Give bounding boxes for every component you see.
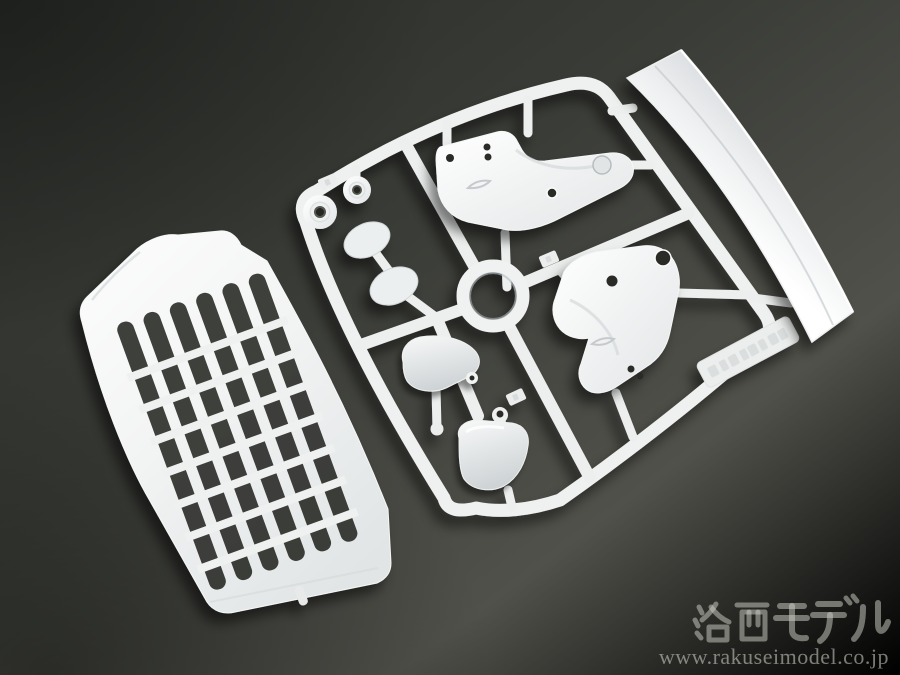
grommet-a: Small round grommet part	[303, 195, 337, 229]
sprue-photo: Sprue runner frame Round ring part	[0, 0, 900, 675]
housing-lug-hole	[497, 411, 504, 418]
bracket-hole	[485, 154, 492, 161]
bracket-hole	[484, 144, 491, 151]
gate	[612, 108, 633, 111]
bracket-hole	[637, 373, 644, 380]
bracket-hole	[628, 366, 635, 373]
gate	[436, 388, 437, 428]
housing-eyelet-hole	[470, 376, 475, 381]
gate	[505, 233, 507, 287]
gate	[508, 490, 512, 507]
watermark-url-text: www.rakuseimodel.co.jp	[659, 644, 889, 669]
bracket-hole	[607, 276, 618, 287]
grommet-b: Small round grommet part	[343, 176, 371, 204]
bracket-hole	[655, 250, 671, 266]
bracket-hole	[446, 154, 454, 162]
bracket-hole	[547, 188, 557, 198]
gate-node	[431, 423, 444, 436]
gate	[679, 293, 750, 295]
photo-stage: Sprue runner frame Round ring part	[0, 0, 900, 675]
bracket-recess	[593, 156, 611, 174]
gate	[753, 298, 791, 303]
